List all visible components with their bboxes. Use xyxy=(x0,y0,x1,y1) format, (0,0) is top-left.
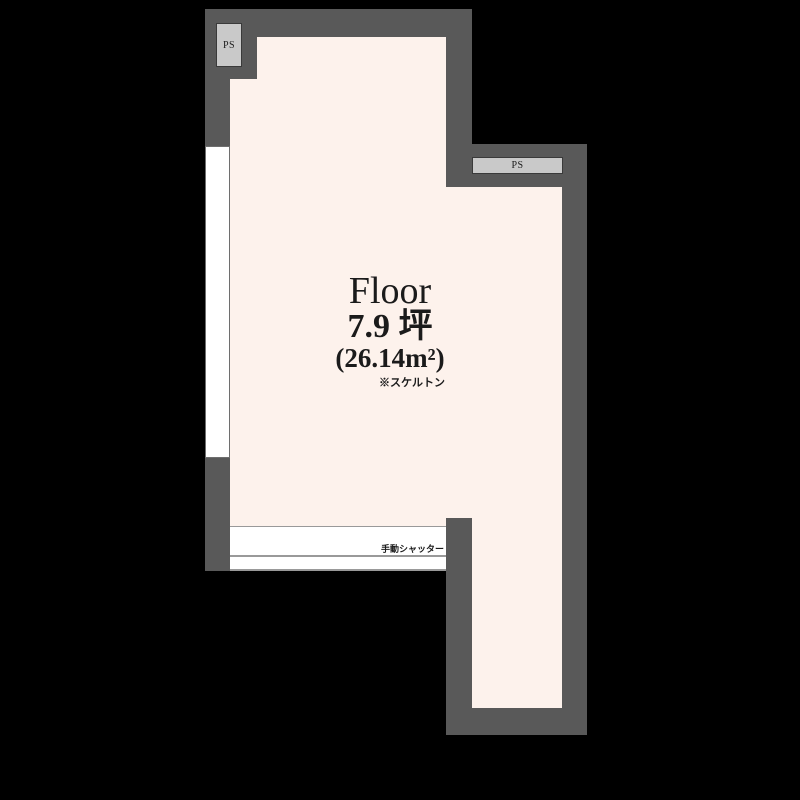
wall-leg-left xyxy=(446,517,472,735)
wall-left-mid xyxy=(205,79,230,146)
shutter-label: 手動シャッター xyxy=(381,542,444,555)
floor-area-top-strip xyxy=(257,37,446,80)
shutter-slat-line xyxy=(230,555,446,557)
shutter-slat-line xyxy=(230,569,446,571)
room-name-label: Floor xyxy=(280,272,500,310)
wall-top xyxy=(205,9,472,37)
ps-box-top-left: PS xyxy=(216,23,242,67)
window-opening xyxy=(205,146,230,458)
shutter-opening: 手動シャッター xyxy=(230,526,446,571)
ps-top-left-label: PS xyxy=(223,40,235,51)
floorplan-canvas: 手動シャッター PS PS Floor 7.9 坪 (26.14m²) ※スケル… xyxy=(0,0,800,800)
ps-box-right: PS xyxy=(472,157,563,174)
room-area-tsubo-label: 7.9 坪 xyxy=(280,310,500,344)
room-skeleton-note: ※スケルトン xyxy=(245,378,445,389)
wall-bottom xyxy=(446,708,587,735)
floor-area-lower-leg xyxy=(472,517,562,708)
wall-right-column xyxy=(562,187,587,735)
wall-left-lower xyxy=(205,458,230,571)
room-area-sqm-label: (26.14m²) xyxy=(280,345,500,372)
ps-right-label: PS xyxy=(511,160,523,171)
wall-right-upper xyxy=(446,37,472,144)
